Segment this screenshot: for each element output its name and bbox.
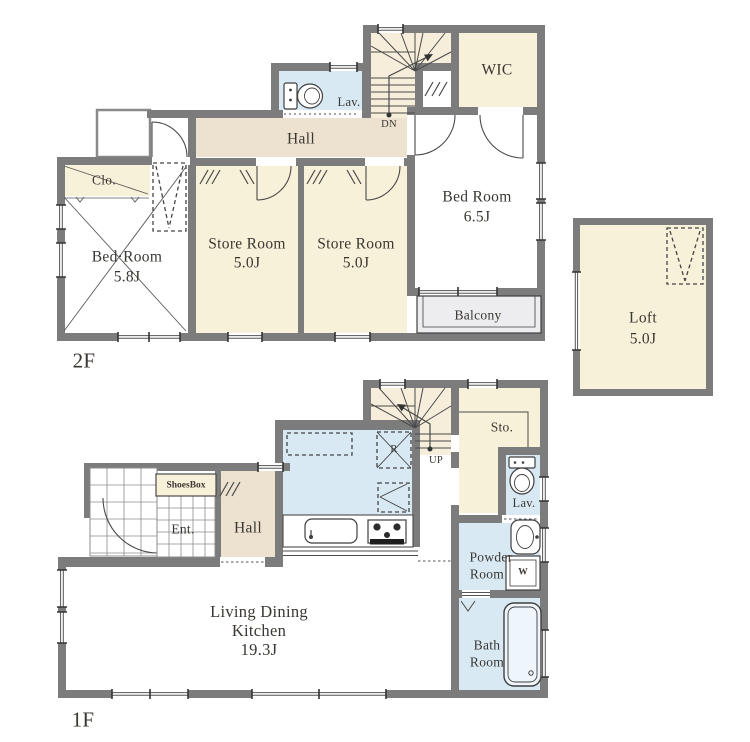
room-label-lav-1f: Lav. <box>513 497 536 510</box>
door-arc <box>415 115 455 155</box>
window <box>228 332 262 342</box>
loft-plan <box>572 218 713 396</box>
door-arc <box>480 115 523 158</box>
room-label-lav-2f: Lav. <box>338 96 361 109</box>
window <box>335 332 370 342</box>
room-label-hall-2f: Hall <box>287 131 315 147</box>
window <box>536 203 546 240</box>
shoes-box-label: ShoesBox <box>166 481 205 491</box>
kitchen-sink-icon <box>305 519 357 543</box>
window <box>378 24 403 34</box>
stove-icon <box>368 520 406 545</box>
room-size-bedroom-main: 6.5J <box>464 209 491 225</box>
toilet-icon <box>509 457 535 494</box>
window <box>56 205 66 229</box>
window <box>572 272 581 350</box>
window <box>56 243 66 277</box>
floor2-plan <box>56 24 546 342</box>
room-label-powder-line2: Room <box>470 567 504 581</box>
room-label-bath-line1: Bath <box>474 638 501 652</box>
window <box>258 462 283 472</box>
bathtub-icon <box>504 603 541 686</box>
refrigerator-label: R <box>390 445 397 456</box>
floorplan-canvas <box>0 0 750 742</box>
window <box>330 62 357 72</box>
room-size-store2: 5.0J <box>343 255 370 271</box>
porch-tiles <box>90 468 158 556</box>
room-label-powder-line1: Powder <box>469 550 512 564</box>
room-label-ldk-line2: Kitchen <box>232 623 286 640</box>
vanity-sink-icon <box>511 520 540 554</box>
room-label-store1: Store Room <box>208 236 286 252</box>
room-label-hall-1f: Hall <box>234 520 262 536</box>
toilet-icon <box>284 83 323 109</box>
roof-outline <box>97 110 150 157</box>
window <box>57 570 67 607</box>
room-label-store2: Store Room <box>317 236 395 252</box>
window <box>118 332 180 342</box>
floorplan-page: Clo. Bed·Room 5.8J Store Room 5.0J Store… <box>0 0 750 742</box>
room-label-bedroom-main: Bed Room <box>442 189 511 205</box>
room-label-bath-line2: Room <box>470 655 504 669</box>
counter-front-lines <box>283 551 418 556</box>
window <box>536 163 546 199</box>
window <box>380 379 405 389</box>
stairs-up-label: UP <box>429 456 443 467</box>
window <box>252 689 386 699</box>
window <box>112 689 188 699</box>
room-size-ldk: 19.3J <box>241 642 278 659</box>
room-label-closet: Clo. <box>92 173 116 187</box>
door-arc <box>152 122 187 157</box>
room-label-storage: Sto. <box>491 420 514 434</box>
window <box>468 379 497 389</box>
stairs-down-label: DN <box>381 120 397 131</box>
floor2-label: 2F <box>73 351 96 372</box>
room-label-ldk-line1: Living Dining <box>210 604 308 621</box>
loft-ladder-symbol <box>153 163 186 231</box>
room-size-bedroom-small: 5.8J <box>114 269 141 285</box>
room-label-balcony: Balcony <box>454 308 501 322</box>
window <box>57 612 67 643</box>
room-label-bedroom-small: Bed·Room <box>92 249 162 265</box>
room-label-loft: Loft <box>629 310 657 326</box>
floor1-label: 1F <box>72 710 95 731</box>
room-label-wic: WIC <box>481 62 512 78</box>
window <box>539 477 549 501</box>
room-size-store1: 5.0J <box>234 255 261 271</box>
washer-label: W <box>518 568 528 578</box>
room-size-loft: 5.0J <box>630 331 657 347</box>
room-label-entrance: Ent. <box>171 522 194 536</box>
